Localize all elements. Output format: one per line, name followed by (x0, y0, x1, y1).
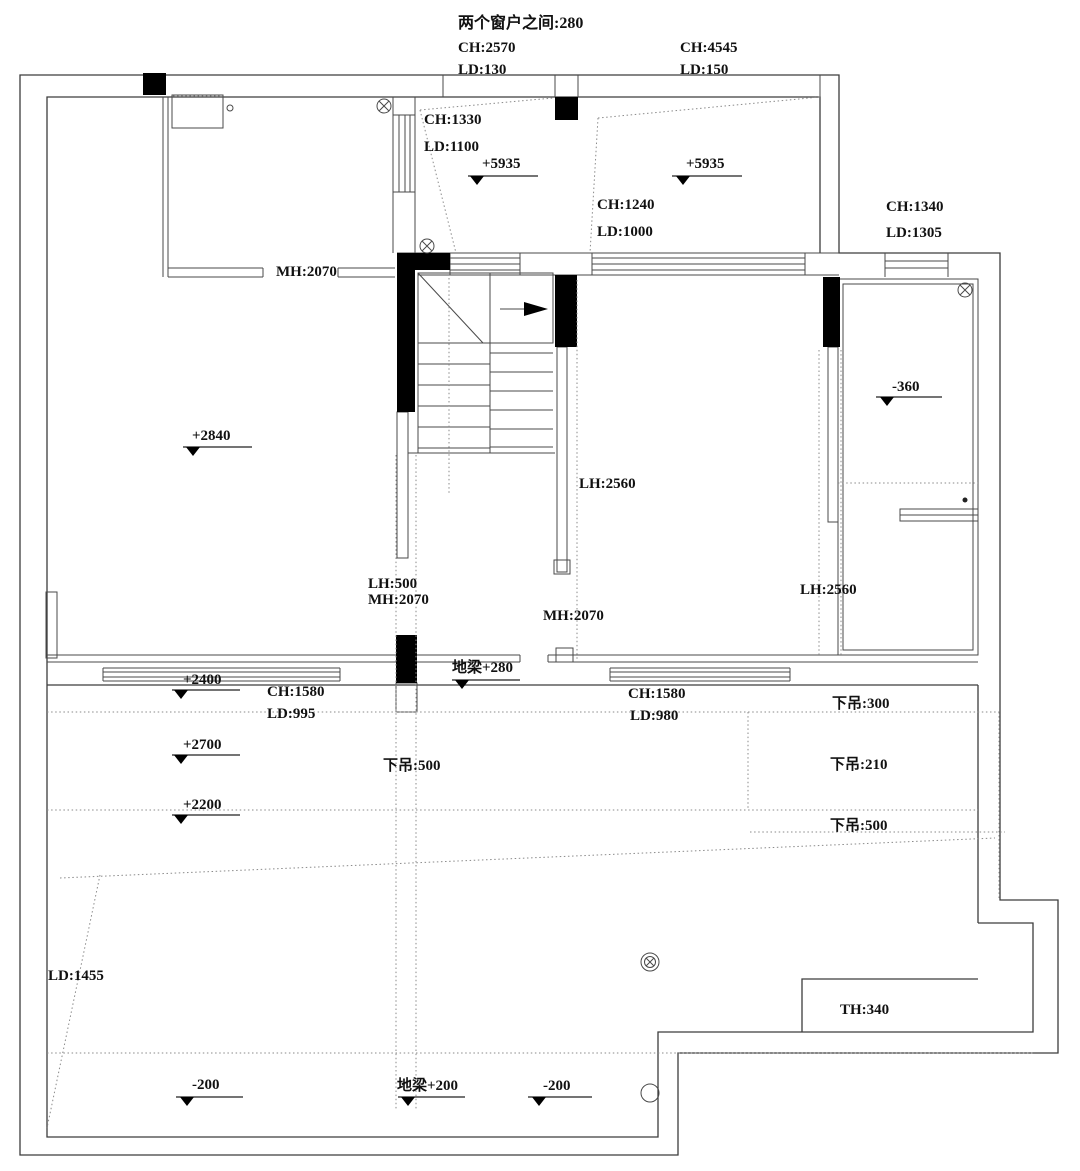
xiadiao-500-left-label: 下吊:500 (383, 757, 441, 774)
level-5935-a-label: +5935 (482, 156, 521, 172)
annotations: 两个窗户之间:280 CH:2570 LD:130 CH:4545 LD:150… (48, 13, 944, 1094)
ld-995-label: LD:995 (267, 706, 315, 722)
xiadiao-500-right-label: 下吊:500 (830, 817, 888, 834)
ceiling-dashed-lines (47, 96, 1035, 1128)
ld-130-label: LD:130 (458, 62, 506, 78)
ld-1100-label: LD:1100 (424, 139, 479, 155)
level-neg360-label: -360 (892, 379, 920, 395)
level-marker (176, 1097, 243, 1106)
ch-1330-label: CH:1330 (424, 112, 482, 128)
level-2840-label: +2840 (192, 428, 231, 444)
level-marker (172, 755, 240, 764)
level-2700-label: +2700 (183, 737, 222, 753)
ld-1455-label: LD:1455 (48, 968, 104, 984)
floor-plan-sheet: 两个窗户之间:280 CH:2570 LD:130 CH:4545 LD:150… (0, 0, 1080, 1171)
mh-2070-center-label: MH:2070 (543, 608, 604, 624)
window-mid-wall-left (450, 253, 520, 275)
lh-500-label: LH:500 (368, 576, 417, 592)
ch-1240-label: CH:1240 (597, 197, 655, 213)
xiadiao-210-label: 下吊:210 (830, 756, 888, 773)
lamp-double-icon (641, 953, 659, 971)
level-marker (172, 690, 240, 699)
ld-980-label: LD:980 (630, 708, 678, 724)
lh-2560-b-label: LH:2560 (800, 582, 857, 598)
level-2400-label: +2400 (183, 672, 222, 688)
mh-2070-mid-label: MH:2070 (368, 592, 429, 608)
window-top-right (885, 253, 948, 277)
lh-2560-a-label: LH:2560 (579, 476, 636, 492)
ch-1580-right-label: CH:1580 (628, 686, 686, 702)
level-marker (183, 447, 252, 456)
lamp-icon (377, 99, 391, 113)
stair-direction-arrow-icon (500, 302, 548, 316)
title-gap-between-windows: 两个窗户之间:280 (458, 13, 583, 32)
xiadiao-300-label: 下吊:300 (832, 695, 890, 712)
ld-150-label: LD:150 (680, 62, 728, 78)
floor-plan-svg: 两个窗户之间:280 CH:2570 LD:130 CH:4545 LD:150… (0, 0, 1080, 1171)
diliang-280-label: 地梁+280 (452, 658, 513, 676)
small-circle-icon (227, 105, 233, 111)
window-mid-wall-right (592, 253, 805, 275)
symbols (227, 99, 972, 1102)
lamp-icon (958, 283, 972, 297)
level-marker (876, 397, 942, 406)
level-5935-b-label: +5935 (686, 156, 725, 172)
staircase (408, 273, 555, 453)
mh-2070-top-label: MH:2070 (276, 264, 337, 280)
level-neg200-a-label: -200 (192, 1077, 220, 1093)
level-2200-label: +2200 (183, 797, 222, 813)
level-marker (172, 815, 240, 824)
lamp-icon (420, 239, 434, 253)
th-340-label: TH:340 (840, 1002, 889, 1018)
window-top-vertical (393, 115, 415, 192)
ch-4545-label: CH:4545 (680, 40, 738, 56)
ch-1580-left-label: CH:1580 (267, 684, 325, 700)
level-neg200-b-label: -200 (543, 1078, 571, 1094)
ch-1340-label: CH:1340 (886, 199, 944, 215)
dot-icon (963, 498, 968, 503)
ld-1305-label: LD:1305 (886, 225, 942, 241)
ch-2570-label: CH:2570 (458, 40, 516, 56)
drain-circle-icon (641, 1084, 659, 1102)
diliang-200-label: 地梁+200 (397, 1076, 458, 1094)
level-marker (672, 176, 742, 185)
window-bottom-right (610, 668, 790, 681)
level-marker (398, 1097, 465, 1106)
level-marker (528, 1097, 592, 1106)
level-marker (468, 176, 538, 185)
ld-1000-label: LD:1000 (597, 224, 653, 240)
